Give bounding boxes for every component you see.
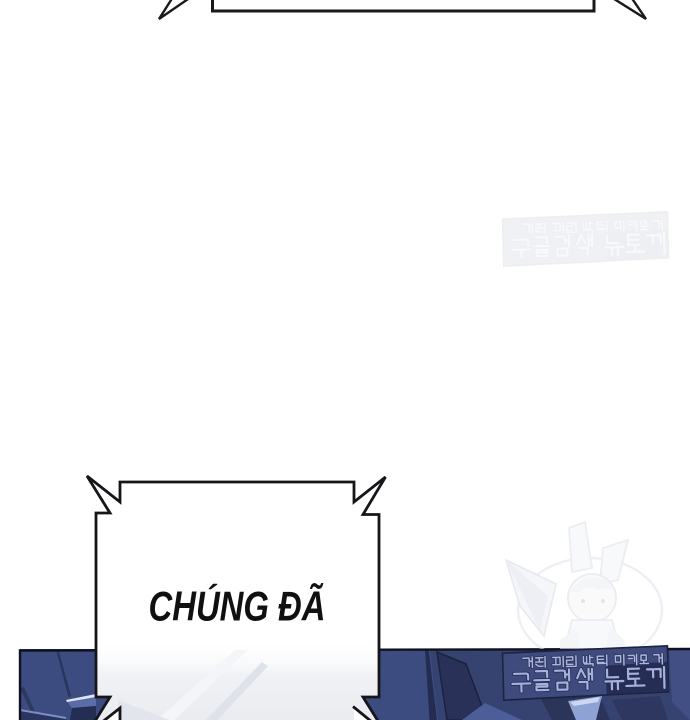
svg-text:CHÚNG ĐÃ: CHÚNG ĐÃ — [149, 583, 326, 630]
